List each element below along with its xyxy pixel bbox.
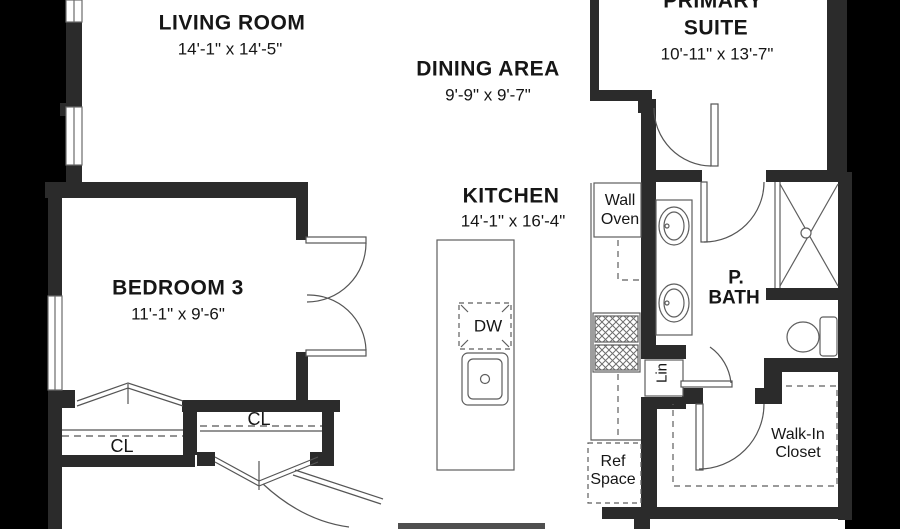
- primary-bath-title-line2: BATH: [708, 289, 759, 308]
- primary-suite-title-line1: PRIMARY: [663, 0, 763, 12]
- dining-area-title: DINING AREA: [416, 59, 560, 80]
- floor-plan: LIVING ROOM 14'-1" x 14'-5" DINING AREA …: [0, 0, 900, 529]
- wall-oven-label-line1: Wall: [605, 193, 636, 209]
- walk-in-closet-label-line2: Closet: [775, 445, 820, 461]
- living-room-title: LIVING ROOM: [159, 13, 306, 34]
- living-window: [66, 107, 82, 165]
- kitchen-title: KITCHEN: [463, 186, 560, 207]
- closet-left-label: CL: [110, 437, 133, 455]
- kitchen-sink: [462, 353, 508, 405]
- bedroom-3-dims: 11'-1" x 9'-6": [131, 306, 225, 323]
- ref-space-label-line2: Space: [590, 472, 635, 488]
- dishwasher-label: DW: [474, 318, 502, 335]
- cooktop: [593, 313, 640, 372]
- vanity: [656, 200, 692, 335]
- wall-oven-label-line2: Oven: [601, 212, 639, 228]
- living-room-dims: 14'-1" x 14'-5": [178, 41, 283, 58]
- bedroom-3-title: BEDROOM 3: [112, 278, 244, 299]
- dining-area-dims: 9'-9" x 9'-7": [445, 87, 531, 104]
- ref-space-label-line1: Ref: [601, 454, 626, 470]
- walk-in-closet-label-line1: Walk-In: [771, 427, 825, 443]
- bedroom-window: [48, 296, 62, 390]
- linen-label: Lin: [655, 363, 670, 383]
- primary-suite-title-line2: SUITE: [684, 18, 748, 39]
- primary-suite-dims: 10'-11" x 13'-7": [661, 46, 774, 63]
- living-window-top: [66, 0, 82, 22]
- primary-bath-title-line1: P.: [728, 269, 744, 288]
- closet-right-label: CL: [247, 410, 270, 428]
- kitchen-dims: 14'-1" x 16'-4": [461, 213, 566, 230]
